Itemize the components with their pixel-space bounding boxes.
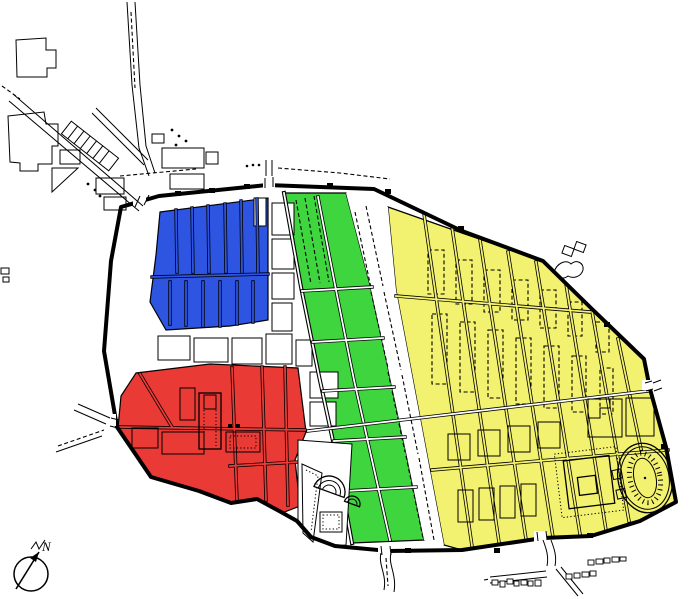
suburban-block [162, 148, 204, 168]
suburban-lane [92, 108, 148, 165]
stabia-road-centerline [386, 558, 388, 586]
suburban-block [206, 152, 218, 164]
stabia-gate [378, 545, 391, 556]
suburban-block [152, 134, 164, 143]
roadside-tombs-dots [87, 129, 188, 198]
city-block [272, 303, 292, 331]
southeast-necropolis [380, 540, 626, 596]
compass-rose: N [14, 539, 52, 591]
far-west-structure [3, 277, 9, 282]
herculaneum-road [9, 94, 143, 211]
city-block [310, 402, 336, 426]
far-west-structure [1, 268, 9, 274]
suburban-block [170, 174, 204, 189]
city-block [266, 334, 292, 364]
road-continuation [484, 579, 490, 580]
compass-circle [14, 557, 48, 591]
forum-building [236, 424, 240, 428]
city-block [296, 340, 312, 366]
city-block [232, 338, 262, 364]
dashed-road [120, 169, 196, 176]
nocera-road [543, 540, 556, 566]
northwest-suburban-roads [2, 2, 218, 211]
north-road [127, 2, 155, 176]
city-block [272, 273, 294, 299]
pompeii-city-map: N [0, 0, 692, 599]
forum-building [228, 424, 232, 428]
nocera-gate [534, 531, 547, 542]
suburban-villa-long [61, 121, 118, 171]
west-outside-roads [1, 268, 110, 452]
suburban-triangle-block [52, 168, 78, 192]
city-block [194, 338, 228, 362]
city-block [272, 239, 294, 269]
northeast-gate-tombs [554, 242, 586, 279]
city-block [158, 336, 190, 360]
suburban-house [16, 38, 56, 77]
north-label: N [41, 539, 52, 554]
pompeii-map: N [0, 0, 692, 599]
north-outside-roads [120, 160, 390, 179]
vesuvius-gate-road [266, 160, 272, 176]
dashed-road [278, 168, 390, 179]
